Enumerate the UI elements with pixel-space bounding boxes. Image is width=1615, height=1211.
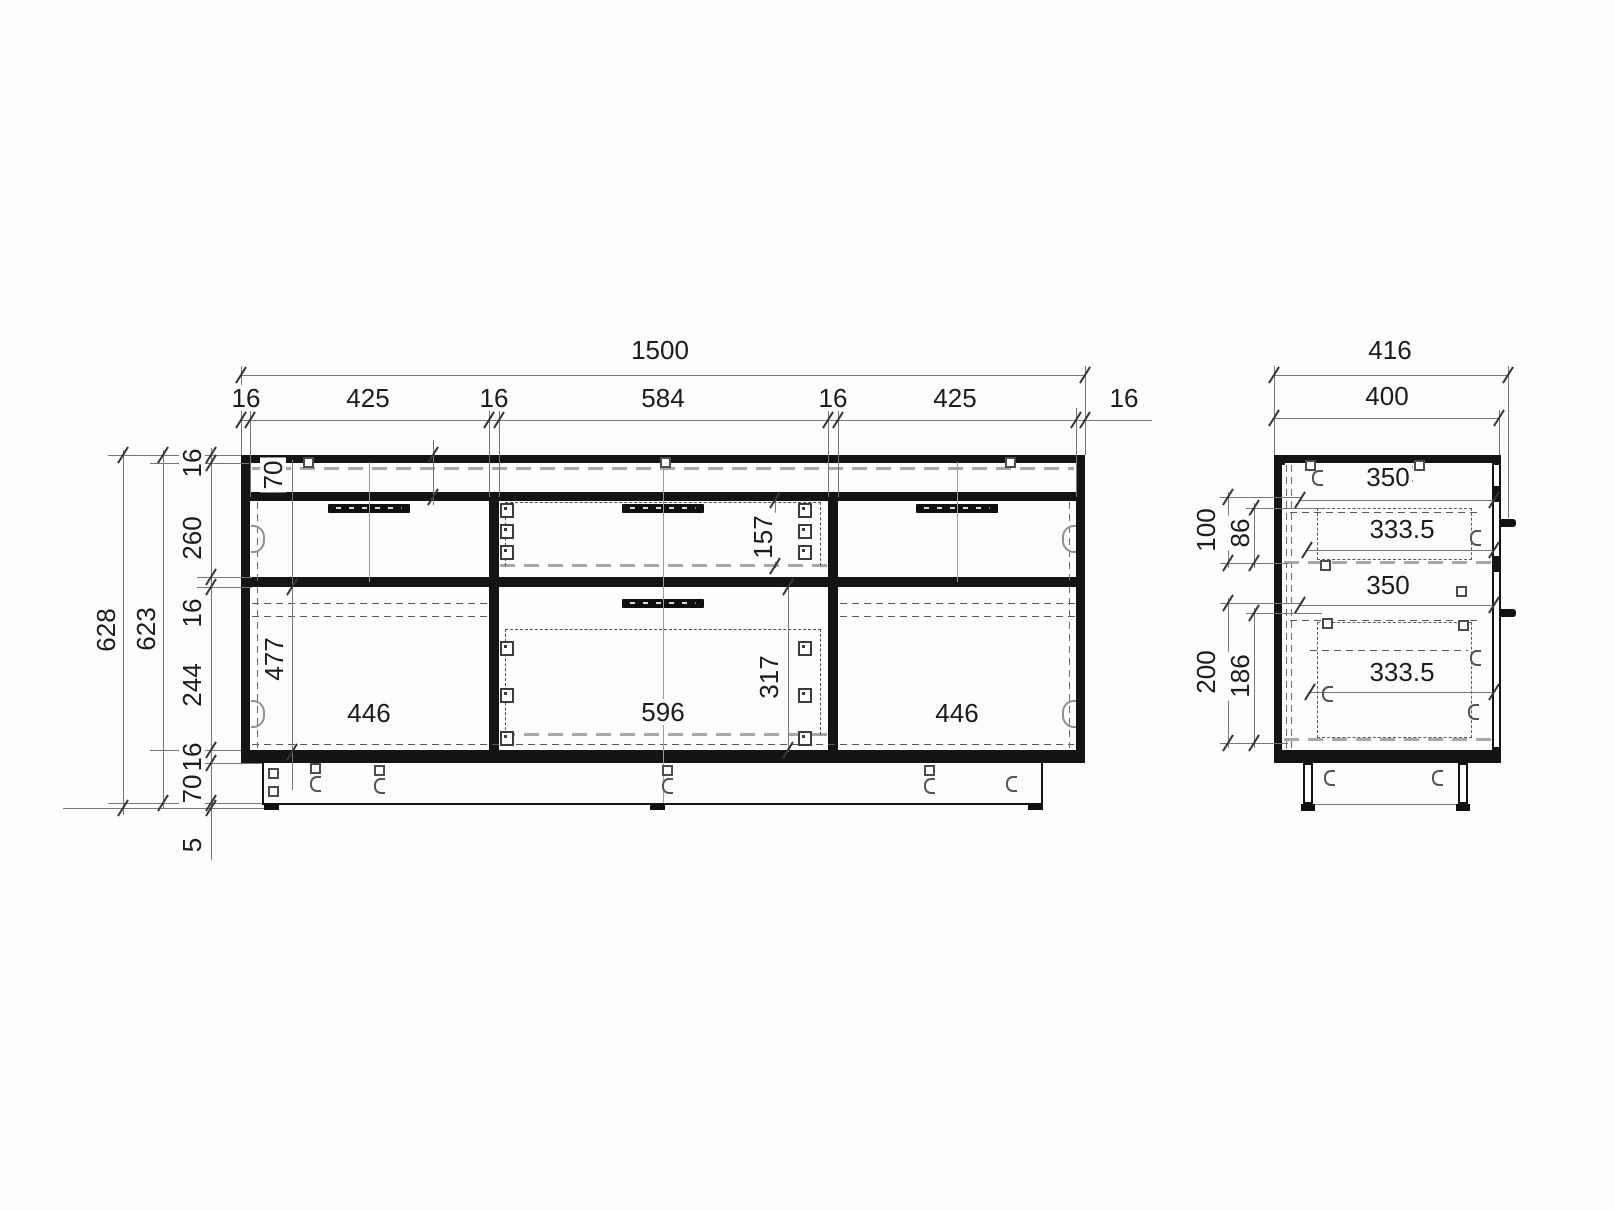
label-big-drawer-596: 596 <box>638 699 687 725</box>
label-top-rail-70: 70 <box>260 458 286 493</box>
cam-lock-icon <box>1432 770 1443 786</box>
dim-label-425a: 425 <box>343 385 392 411</box>
side-bottom-panel <box>1274 750 1492 763</box>
dim-label-628: 628 <box>93 605 119 654</box>
fitting-icon <box>1456 586 1467 597</box>
front-edge-band <box>1492 747 1501 763</box>
side-dash-line <box>1290 620 1480 621</box>
connector-glyph <box>798 524 812 539</box>
front-left-wall <box>241 455 250 763</box>
front-right-wall <box>1076 455 1085 763</box>
plinth-leg-back <box>1303 763 1313 804</box>
knob-upper <box>1501 519 1516 527</box>
fitting-icon <box>660 457 671 468</box>
screw-dot <box>1279 754 1285 760</box>
front-edge-band <box>1492 556 1501 572</box>
dim-label-16d: 16 <box>1107 385 1142 411</box>
cam-lock-icon <box>1322 686 1333 702</box>
connector-glyph <box>798 688 812 703</box>
cam-lock-icon <box>374 778 385 794</box>
centerline-left-bay <box>369 462 370 582</box>
dim-line-623 <box>163 450 164 808</box>
ext-line <box>1274 366 1275 455</box>
label-333-lower: 333.5 <box>1366 659 1437 685</box>
fitting-icon <box>1458 620 1469 631</box>
fitting-icon <box>374 765 385 776</box>
dim-label-260: 260 <box>179 513 205 562</box>
dim-label-186: 186 <box>1227 651 1253 700</box>
ext-line <box>1508 366 1509 518</box>
label-350-mid: 350 <box>1363 572 1412 598</box>
ext-line <box>108 455 241 456</box>
fitting-icon <box>662 765 673 776</box>
centerline-right-bay <box>957 462 958 582</box>
connector-glyph <box>798 641 812 656</box>
label-door-477: 477 <box>261 634 287 683</box>
dim-line-350-mid <box>1300 605 1494 606</box>
dim-line-width-chain <box>241 420 1152 421</box>
right-shelf-line-2 <box>840 616 1076 617</box>
connector-glyph <box>500 545 514 560</box>
front-foot <box>1028 803 1043 810</box>
dim-label-416: 416 <box>1365 337 1414 363</box>
ext-line <box>63 808 268 809</box>
front-vertical-divider-right <box>828 492 838 750</box>
connector-glyph <box>500 641 514 656</box>
cam-lock-icon <box>924 778 935 794</box>
connector-glyph <box>500 524 514 539</box>
label-drawer-317: 317 <box>756 652 782 701</box>
hinge-arc-icon <box>1062 525 1076 553</box>
cam-lock-icon <box>1470 650 1481 666</box>
dim-line-333-upper <box>1307 550 1494 551</box>
connector-glyph <box>500 503 514 518</box>
label-350-top: 350 <box>1363 464 1412 490</box>
hinge-arc-icon <box>251 525 265 553</box>
ext-line <box>1085 366 1086 455</box>
fitting-icon <box>1414 460 1425 471</box>
dim-label-h16b: 16 <box>179 596 205 631</box>
dim-label-400: 400 <box>1362 383 1411 409</box>
screw-dot <box>1279 459 1285 465</box>
dim-label-16c: 16 <box>816 385 851 411</box>
hinge-arc-icon <box>1062 700 1076 728</box>
dim-line-333-lower <box>1310 692 1494 693</box>
dim-label-16a: 16 <box>229 385 264 411</box>
cam-lock-icon <box>1324 770 1335 786</box>
left-shelf-line-1 <box>252 603 489 604</box>
ext-line <box>1246 613 1322 614</box>
dim-label-h16a: 16 <box>179 446 205 481</box>
dim-line-317 <box>788 587 789 752</box>
fitting-icon <box>1322 618 1333 629</box>
dim-line-477 <box>292 460 293 790</box>
front-foot <box>264 803 279 810</box>
side-foot <box>1456 804 1470 811</box>
plinth-leg-front <box>1458 763 1468 804</box>
fitting-icon <box>924 765 935 776</box>
label-drawer-157: 157 <box>750 512 776 561</box>
dim-label-425b: 425 <box>930 385 979 411</box>
left-shelf-line-2 <box>252 616 489 617</box>
dim-label-200: 200 <box>1193 647 1219 696</box>
dim-label-h16c: 16 <box>179 740 205 775</box>
fitting-icon <box>1305 460 1316 471</box>
side-back-wall <box>1274 455 1282 763</box>
hinge-arc-icon <box>251 700 265 728</box>
label-right-door-446: 446 <box>932 700 981 726</box>
ext-line <box>197 577 252 578</box>
connector-glyph <box>500 731 514 746</box>
fitting-icon <box>303 457 314 468</box>
cam-lock-icon <box>1468 704 1479 720</box>
side-hidden-edge-lower <box>1284 738 1492 741</box>
ext-line <box>197 587 252 588</box>
dim-line-350-top <box>1300 500 1494 501</box>
dim-label-623: 623 <box>133 604 159 653</box>
cam-lock-icon <box>1006 776 1017 792</box>
dim-label-70p: 70 <box>179 772 205 807</box>
dim-label-1500: 1500 <box>628 337 692 363</box>
dim-label-584: 584 <box>638 385 687 411</box>
connector-glyph <box>798 545 812 560</box>
dim-line-400 <box>1274 418 1499 419</box>
label-333-upper: 333.5 <box>1366 516 1437 542</box>
dim-label-16b: 16 <box>477 385 512 411</box>
dim-label-5: 5 <box>179 835 205 855</box>
right-shelf-line-1 <box>840 603 1076 604</box>
front-edge-band <box>1492 455 1501 465</box>
plinth-right-edge <box>1041 763 1043 805</box>
dim-line-628 <box>123 450 124 815</box>
dim-line-416 <box>1274 375 1508 376</box>
label-left-door-446: 446 <box>344 700 393 726</box>
cam-lock-icon <box>310 776 321 792</box>
cam-lock-icon <box>1312 470 1323 486</box>
fitting-icon <box>1320 560 1331 571</box>
knob-lower <box>1501 609 1516 617</box>
plinth-bottom-line <box>1313 804 1458 805</box>
centerline-mid-bay <box>663 462 664 806</box>
side-hidden-edge-upper <box>1284 561 1492 564</box>
dim-label-244: 244 <box>179 660 205 709</box>
fitting-icon <box>268 768 279 779</box>
front-foot <box>650 803 665 810</box>
fitting-icon <box>268 786 279 797</box>
fitting-icon <box>310 763 321 774</box>
ext-line <box>1220 497 1302 498</box>
cam-lock-icon <box>1470 530 1481 546</box>
connector-glyph <box>798 731 812 746</box>
cam-lock-icon <box>662 778 673 794</box>
plinth-left-edge <box>262 763 264 805</box>
dim-line-1500 <box>241 375 1085 376</box>
blueprint-canvas: 1500 16 425 16 584 16 425 16 628 623 16 … <box>0 0 1615 1211</box>
connector-glyph <box>798 503 812 518</box>
dim-label-86: 86 <box>1227 516 1253 551</box>
front-vertical-divider-left <box>489 492 499 750</box>
ext-line <box>1246 508 1322 509</box>
connector-glyph <box>500 688 514 703</box>
side-foot <box>1301 804 1315 811</box>
fitting-icon <box>1005 457 1016 468</box>
dim-label-100: 100 <box>1193 505 1219 554</box>
ext-line <box>1220 603 1302 604</box>
